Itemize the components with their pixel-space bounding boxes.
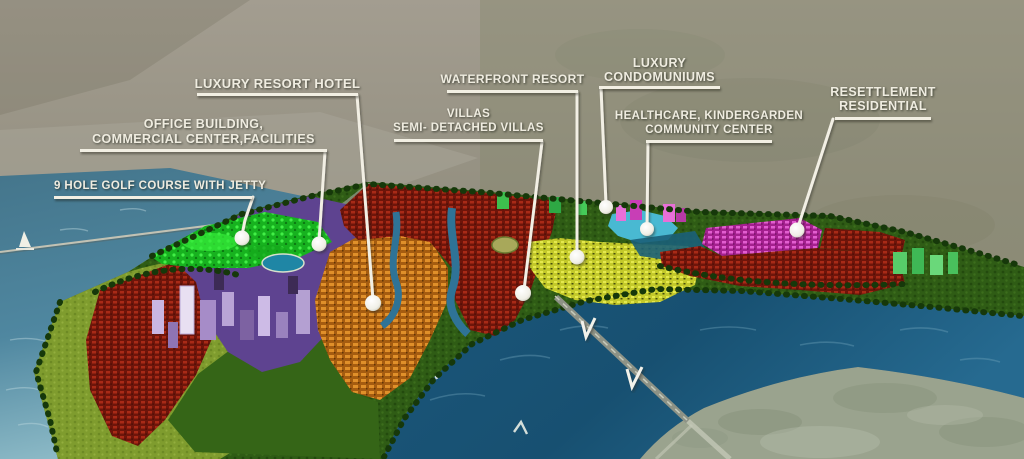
label-underline	[646, 140, 772, 143]
label-resettlement-residential: RESETTLEMENT RESIDENTIAL	[826, 85, 940, 120]
marker-dot-villas	[515, 285, 531, 301]
marker-dot-condominiums	[599, 200, 613, 214]
label-line: RESIDENTIAL	[839, 99, 927, 113]
label-villas: VILLAS SEMI- DETACHED VILLAS	[394, 107, 543, 142]
label-line: LUXURY RESORT HOTEL	[195, 76, 361, 91]
label-line: RESETTLEMENT	[830, 85, 936, 99]
label-underline	[54, 196, 252, 199]
label-healthcare-community: HEALTHCARE, KINDERGARDEN COMMUNITY CENTE…	[608, 109, 810, 143]
label-line: COMMUNITY CENTER	[645, 123, 773, 137]
resort-lagoon	[262, 254, 304, 272]
label-underline	[599, 86, 720, 89]
marker-dot-office	[312, 237, 327, 252]
label-office-commercial: OFFICE BUILDING, COMMERCIAL CENTER,FACIL…	[80, 117, 327, 152]
label-line: LUXURY	[633, 56, 686, 70]
label-waterfront-resort: WATERFRONT RESORT	[447, 72, 578, 93]
roundabout-park	[492, 237, 518, 253]
label-underline	[197, 93, 358, 96]
label-underline	[80, 149, 327, 152]
leader-line-healthcare	[647, 142, 648, 226]
label-golf-course: 9 HOLE GOLF COURSE WITH JETTY	[54, 179, 252, 199]
label-luxury-condominiums: LUXURY CONDOMUNIUMS	[599, 56, 720, 89]
label-line: HEALTHCARE, KINDERGARDEN	[615, 109, 803, 123]
label-underline	[835, 117, 931, 120]
label-line: VILLAS	[447, 107, 490, 121]
masterplan-rendering	[0, 0, 1024, 459]
label-line: WATERFRONT RESORT	[441, 72, 585, 87]
label-underline	[447, 90, 578, 93]
marker-dot-healthcare	[640, 222, 654, 236]
label-line: OFFICE BUILDING,	[144, 117, 264, 132]
label-line: CONDOMUNIUMS	[604, 70, 715, 84]
label-line: 9 HOLE GOLF COURSE WITH JETTY	[54, 179, 266, 193]
label-underline	[394, 139, 543, 142]
marker-dot-waterfront	[570, 250, 585, 265]
marker-dot-hotel	[365, 295, 381, 311]
marker-dot-golf	[235, 231, 250, 246]
marker-dot-resettlement	[790, 223, 805, 238]
label-luxury-resort-hotel: LUXURY RESORT HOTEL	[197, 76, 358, 96]
masterplan-image: 9 HOLE GOLF COURSE WITH JETTY OFFICE BUI…	[0, 0, 1024, 459]
label-line: SEMI- DETACHED VILLAS	[393, 121, 544, 135]
label-line: COMMERCIAL CENTER,FACILITIES	[92, 132, 315, 147]
